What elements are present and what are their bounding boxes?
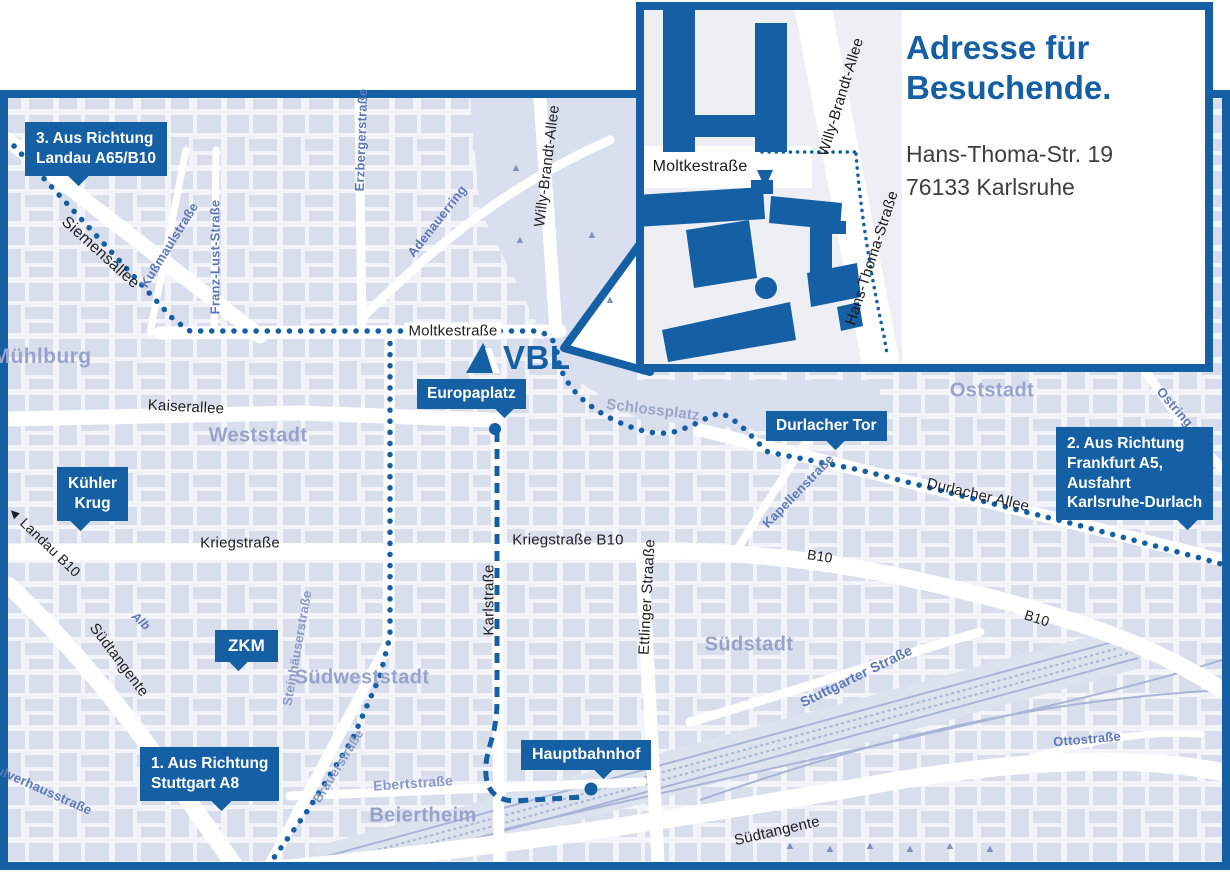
building-h-bar-left (663, 10, 695, 152)
callout-from-stuttgart: 1. Aus Richtung Stuttgart A8 (140, 747, 279, 801)
callout-line: Frankfurt A5, (1067, 454, 1202, 474)
callout-europaplatz: Europaplatz (417, 379, 526, 409)
callout-line: 3. Aus Richtung (36, 129, 156, 149)
callout-line: ZKM (228, 636, 265, 655)
inset-title-line: Besuchende. (906, 68, 1111, 108)
vbl-triangle-icon (466, 343, 500, 373)
inset-address-line: Hans-Thoma-Str. 19 (906, 138, 1113, 171)
inset-address-line: 76133 Karlsruhe (906, 171, 1113, 204)
callout-line: Landau A65/B10 (36, 149, 156, 169)
callout-hauptbahnhof: Hauptbahnhof (521, 740, 651, 770)
karlsruhe-direction-map: Siemensallee Moltkestraße Kaiserallee Kr… (0, 0, 1230, 874)
callout-line: Ausfahrt (1067, 474, 1202, 494)
callout-from-frankfurt: 2. Aus Richtung Frankfurt A5, Ausfahrt K… (1056, 427, 1213, 520)
callout-from-landau: 3. Aus Richtung Landau A65/B10 (25, 122, 167, 176)
callout-zkm: ZKM (215, 630, 278, 662)
inset-title-line: Adresse für (906, 28, 1111, 68)
callout-kuehler-krug: Kühler Krug (57, 467, 128, 521)
building-h-crossbar (695, 115, 755, 137)
building-square (686, 220, 757, 288)
vbl-logo: VBL (466, 341, 571, 374)
callout-line: 2. Aus Richtung (1067, 434, 1202, 454)
callout-line: 1. Aus Richtung (151, 754, 268, 774)
callout-line: Durlacher Tor (776, 417, 877, 434)
callout-line: Stuttgart A8 (151, 774, 268, 794)
inset-title: Adresse für Besuchende. (906, 28, 1111, 107)
inset-label-moltkestrasse: Moltkestraße (653, 158, 748, 176)
building-h-bar-right (755, 23, 787, 152)
building-rotunda (755, 277, 777, 299)
building-right-tab (832, 221, 846, 234)
callout-durlacher-tor: Durlacher Tor (766, 411, 887, 441)
inset-address: Hans-Thoma-Str. 19 76133 Karlsruhe (906, 138, 1113, 203)
callout-line: Hauptbahnhof (532, 746, 640, 763)
visitor-address-inset: Moltkestraße Willy-Brandt-Allee Hans-Tho… (636, 2, 1213, 372)
callout-line: Karlsruhe-Durlach (1067, 493, 1202, 513)
callout-line: Krug (68, 494, 117, 514)
vbl-logo-text: VBL (503, 341, 571, 374)
callout-line: Kühler (68, 474, 117, 494)
building-entrance-stub (751, 180, 773, 194)
